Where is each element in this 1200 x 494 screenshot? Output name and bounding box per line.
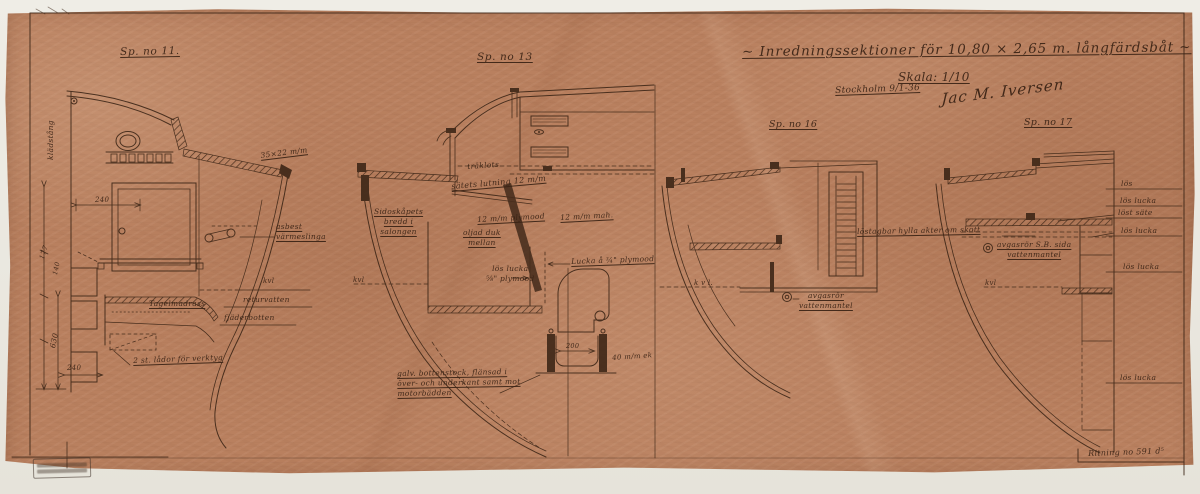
annotation-los-lucka-plymood: lös lucka ⅝" plymood bbox=[486, 264, 534, 284]
section-title-sp17: Sp. no 17 bbox=[1024, 117, 1072, 129]
annotation-oljad-duk: oljad duk mellan bbox=[463, 228, 501, 248]
annotation-asbest-varmeslinga: asbest värmeslinga bbox=[276, 222, 326, 242]
annotation-kladstang: klädstång bbox=[46, 120, 56, 160]
section-title-sp16: Sp. no 16 bbox=[769, 119, 817, 131]
dimension-200: 200 bbox=[566, 342, 579, 350]
archive-stamp bbox=[33, 457, 92, 479]
section-sp16-linework bbox=[660, 161, 877, 398]
annotation-avgasror-sp16: avgasrör vattenmantel bbox=[799, 291, 853, 311]
annotation-fjaderbotten: fjäderbotten bbox=[224, 313, 275, 323]
annotation-lost-sate: löst säte bbox=[1118, 208, 1153, 218]
annotation-los-lucka-2: lös lucka bbox=[1121, 226, 1157, 236]
section-sp11-linework bbox=[36, 91, 312, 448]
dimension-240-top: 240 bbox=[95, 196, 109, 205]
section-title-sp13: Sp. no 13 bbox=[477, 51, 533, 65]
annotation-los-lucka-1: lös lucka bbox=[1120, 196, 1156, 206]
annotation-los: lös bbox=[1121, 179, 1133, 189]
section-title-sp11: Sp. no 11. bbox=[120, 45, 180, 60]
annotation-kvl-sp16: k v l. bbox=[694, 279, 713, 288]
annotation-kvl-sp17: kvl bbox=[985, 279, 996, 288]
annotation-avgasror-sp17: avgasrör S.B. sida vattenmantel bbox=[997, 240, 1071, 260]
dimension-240-bottom: 240 bbox=[67, 364, 81, 373]
annotation-los-lucka-3: lös lucka bbox=[1123, 262, 1159, 272]
annotation-bottenstock: galv. bottenstock, flänsad i över- och u… bbox=[397, 367, 521, 398]
annotation-tagelmadrass: Tagelmadrass bbox=[149, 299, 205, 309]
annotation-kvl-sp13: kvl bbox=[353, 276, 364, 285]
annotation-returvatten: returvatten bbox=[243, 295, 290, 305]
scanned-drawing-sheet: ~ Inredningssektioner för 10,80 × 2,65 m… bbox=[0, 0, 1200, 494]
annotation-los-lucka-4: lös lucka bbox=[1120, 373, 1156, 383]
annotation-kvl-sp11: kvl bbox=[263, 277, 274, 286]
annotation-sidoskapets-bredd: Sidoskåpets bredd i salongen bbox=[374, 207, 423, 236]
